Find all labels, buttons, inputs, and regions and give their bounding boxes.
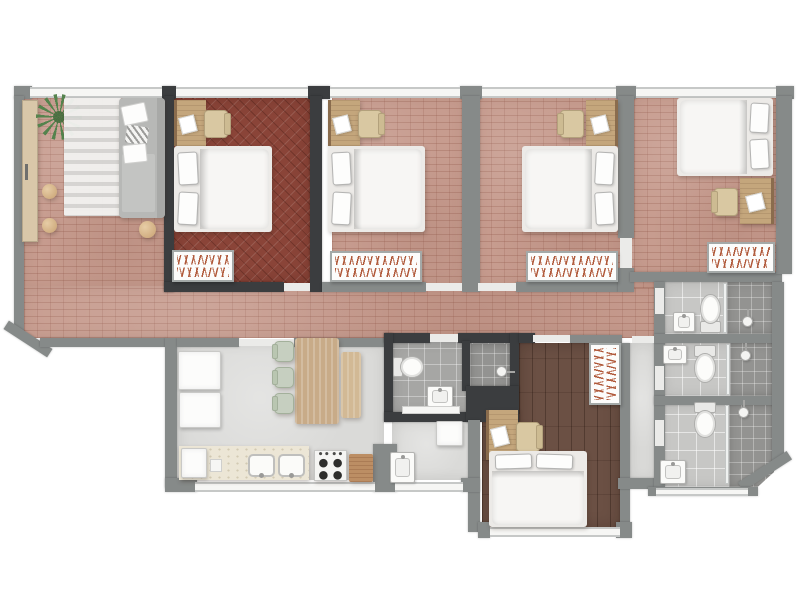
bathroom-mid-right-shower-head <box>740 350 751 361</box>
freezer <box>179 392 221 428</box>
window-bedroom4 <box>636 87 776 98</box>
bathroom-top-shower-head <box>742 316 753 327</box>
bathroom-mid-right-sink <box>663 345 687 364</box>
bedroom5-right-wall-low <box>620 487 630 527</box>
bedroom2-wardrobe <box>330 251 422 282</box>
sofa-cush-b <box>125 124 150 145</box>
bedroom4-bed-pil-b <box>749 139 770 170</box>
bedroom4-chair <box>714 188 738 216</box>
pouf-3 <box>139 221 156 238</box>
hallway-floor <box>24 286 662 338</box>
bedroom1-desk <box>174 100 206 146</box>
bathroom-middle-divider-wall <box>462 341 470 391</box>
kitchen-bottom-wall-left <box>165 478 197 492</box>
bedroom3-wardrobe <box>526 251 618 282</box>
bedroom3-bedroom4-wall <box>618 96 634 238</box>
bathroom-top-door-threshold <box>655 288 664 314</box>
bedroom2-desk <box>328 100 360 146</box>
bedroom1-bed-pil-b <box>177 191 198 225</box>
bedroom2-chair <box>358 110 382 138</box>
bedroom1-south-wall <box>164 282 284 292</box>
cutting-board <box>349 454 373 482</box>
bedroom3-door-threshold <box>478 283 516 291</box>
bathroom-middle-shower-head <box>496 366 507 377</box>
bathroom-mid-right-shower-divider <box>726 344 730 395</box>
kitchen-top-wall-left <box>177 338 239 347</box>
washing-machine <box>436 421 463 446</box>
bathroom-mid-right-shower-floor <box>730 343 774 396</box>
bathroom-middle-toilet <box>393 355 424 379</box>
bedroom4-desk-paper <box>745 192 766 213</box>
corridor-door-threshold <box>632 336 654 343</box>
bathroom-mid-right-door-threshold <box>655 366 664 390</box>
bedroom2-bed-duv <box>354 149 422 230</box>
counter-item <box>210 459 222 472</box>
dining-chair-2 <box>274 367 294 388</box>
laundry-sink <box>390 452 415 483</box>
sofa <box>119 98 165 218</box>
bedroom4-bed-pil-a <box>749 103 770 134</box>
hallway-south-wall <box>40 338 166 347</box>
bedroom1-desk-paper <box>179 114 199 135</box>
bathroom-middle-vanity <box>402 406 460 414</box>
bedroom4-door-threshold <box>620 238 632 268</box>
bedroom4-wardrobe <box>707 242 775 273</box>
bedroom2-bed <box>328 146 425 232</box>
bedroom1-right-wall <box>310 96 322 292</box>
bedroom4-bed-duv <box>680 100 747 173</box>
bathroom-middle-door-threshold <box>430 334 458 342</box>
corridor-floor <box>630 343 656 481</box>
sofa-cush-a <box>120 102 149 127</box>
bathroom-top-toilet <box>698 294 723 333</box>
window-bedroom5 <box>490 527 620 537</box>
dining-chair-1 <box>274 341 294 362</box>
bedroom5-bed-pil-a <box>495 453 533 469</box>
bathroom-bottom-shower-divider <box>725 405 729 484</box>
bedroom3-desk <box>586 100 618 146</box>
bedroom1-bed-pil-a <box>177 152 198 186</box>
kitchen-sink-left <box>248 454 275 477</box>
pouf-1 <box>42 184 57 199</box>
bedroom1-chair <box>204 110 228 138</box>
kitchen-left-wall <box>165 338 177 488</box>
window-bedroom3 <box>482 87 616 98</box>
bedroom5-bed <box>489 451 587 527</box>
bedroom1-wardrobe <box>172 250 234 282</box>
bathroom-middle-sink <box>427 386 453 407</box>
floor-plan-canvas <box>0 0 800 600</box>
bathroom-top-sink <box>673 312 695 332</box>
bedroom5-bed-duv <box>492 471 584 525</box>
dining-chair-3 <box>274 393 294 414</box>
bedroom1-bed-duv <box>200 149 269 230</box>
bathroom-top-divider-wall <box>654 334 780 343</box>
sofa-back <box>157 98 165 218</box>
window-bedroom1 <box>176 87 308 98</box>
bedroom5-left-wall <box>468 420 480 532</box>
pouf-2 <box>42 218 57 233</box>
dining-table <box>295 338 339 424</box>
stove <box>314 450 347 481</box>
bedroom1-bed <box>174 146 272 232</box>
bathroom-middle-left-wall <box>384 333 393 422</box>
bedroom3-bed-pil-a <box>594 152 615 186</box>
bedroom3-bed-pil-b <box>594 191 615 225</box>
bedroom3-bed-duv <box>525 149 592 230</box>
bedroom2-door-threshold <box>426 283 462 291</box>
rug <box>64 98 122 216</box>
bedroom5-wardrobe <box>589 343 621 405</box>
dining-bench <box>341 352 361 418</box>
dishwasher <box>181 448 207 478</box>
window-kitchen <box>195 482 375 492</box>
bedroom4-desk <box>740 178 774 224</box>
bedroom3-chair <box>560 110 584 138</box>
bathroom-bottom-door-threshold <box>655 420 664 446</box>
bedroom2-south-wall <box>322 282 426 292</box>
bedroom2-desk-paper <box>333 114 353 135</box>
bathroom-bottom-toilet <box>692 402 718 438</box>
bathroom-mid-right-toilet <box>692 345 718 383</box>
bedroom1-door-threshold <box>284 283 310 291</box>
bedroom2-right-wall <box>462 96 480 292</box>
corridor-left-wall <box>620 343 630 487</box>
bathroom-bottom-sink <box>660 460 686 484</box>
bedroom3-south-wall <box>516 282 618 292</box>
bedroom2-bed-pil-b <box>331 191 352 225</box>
fridge <box>178 351 221 390</box>
right-wall-top <box>776 96 792 274</box>
bedroom5-top-wall <box>570 335 622 343</box>
bedroom3-bed <box>522 146 618 232</box>
bedroom3-desk-paper <box>591 114 611 135</box>
bedroom5-bed-pil-b <box>536 453 574 469</box>
kitchen-sink-right <box>278 454 305 477</box>
bedroom4-bed <box>677 98 773 176</box>
bedroom5-desk-paper <box>490 425 510 447</box>
bathroom-top-shower-floor <box>727 282 774 334</box>
window-laundry <box>395 482 463 492</box>
bedroom5-door-threshold <box>533 335 570 342</box>
bedroom2-bed-pil-a <box>331 152 352 186</box>
bedroom5-chair <box>516 422 540 452</box>
bathroom-top-shower-divider <box>723 283 727 333</box>
bathrooms-right-wall <box>772 282 784 462</box>
window-bathroom-bottom <box>656 488 748 496</box>
bedroom4-south-wall <box>630 272 782 282</box>
laundry-bottom-wall-right <box>461 478 480 492</box>
sofa-cush-c <box>122 142 148 164</box>
window-bedroom2 <box>330 87 460 98</box>
bathroom-bottom-shower-head <box>738 407 749 418</box>
